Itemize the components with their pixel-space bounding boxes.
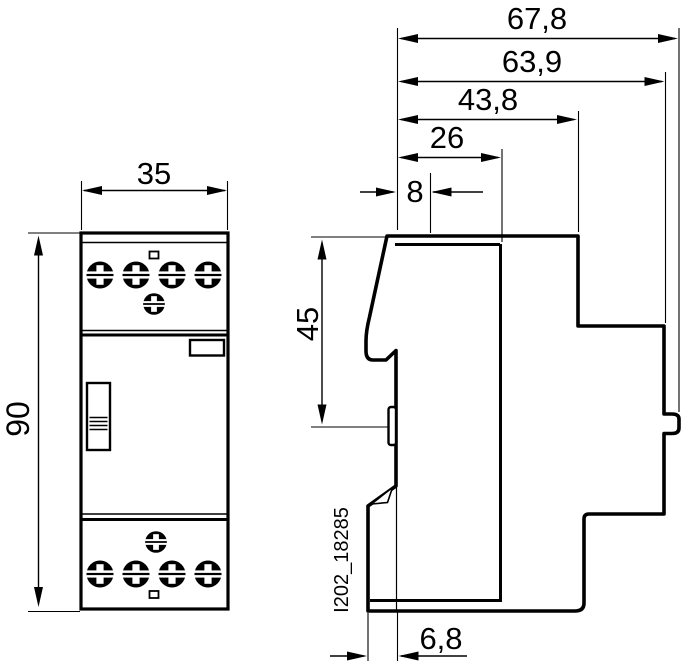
arrowhead <box>398 34 418 43</box>
dim-body-depth-label: 63,9 <box>502 44 562 79</box>
screw-terminal-icon <box>123 262 150 289</box>
screw-terminal-icon <box>87 262 114 289</box>
front-view <box>81 233 228 609</box>
dim-clip-depth: 6,8 <box>330 612 467 661</box>
dim-module-height-label: 90 <box>0 401 36 437</box>
arrowhead <box>207 186 227 195</box>
arrowhead <box>34 587 43 607</box>
side-view <box>366 236 679 611</box>
arrowhead <box>318 405 327 425</box>
dim-clip-depth-label: 6,8 <box>419 621 462 656</box>
contactor-dimension-drawing: 67,8 63,9 43,8 26 8 <box>0 0 685 666</box>
dim-front-offset: 8 <box>360 173 483 233</box>
screw-terminal-icon <box>195 262 222 289</box>
arrowhead <box>432 188 452 197</box>
screw-terminal-icon <box>87 561 114 588</box>
dim-module-height: 90 <box>0 233 80 612</box>
dim-module-width: 35 <box>82 156 228 230</box>
arrowhead <box>82 186 102 195</box>
screw-terminal-small-icon <box>143 293 165 315</box>
label-window <box>190 340 224 356</box>
arrowhead <box>645 77 665 86</box>
screw-terminal-icon <box>123 561 150 588</box>
arrowhead <box>34 236 43 256</box>
dim-overall-depth-label: 67,8 <box>507 1 567 36</box>
indicator-window <box>150 252 159 259</box>
din-rail-tab <box>389 407 397 445</box>
screw-terminal-icon <box>159 561 186 588</box>
dim-module-width-label: 35 <box>137 156 171 191</box>
switch-lever <box>87 383 110 450</box>
drawing-id-label: I202_18285 <box>331 507 353 613</box>
switch-lever-body <box>87 383 110 450</box>
arrowhead <box>481 153 501 162</box>
dim-upper-depth-label: 26 <box>430 120 464 155</box>
dimension-drawing-canvas: 67,8 63,9 43,8 26 8 <box>0 0 685 666</box>
arrowhead <box>347 652 367 661</box>
screw-terminal-icon <box>159 262 186 289</box>
dim-din-height-label: 45 <box>290 307 325 341</box>
dim-front-depth-label: 43,8 <box>458 82 518 117</box>
indicator-window <box>150 591 159 598</box>
arrowhead <box>399 652 419 661</box>
screw-terminal-small-icon <box>145 531 167 553</box>
screw-terminal-icon <box>195 561 222 588</box>
arrowhead <box>398 153 418 162</box>
dim-front-offset-label: 8 <box>406 174 423 209</box>
arrowhead <box>398 77 418 86</box>
arrowhead <box>398 115 418 124</box>
side-view-outline <box>366 236 679 611</box>
arrowhead <box>318 240 327 260</box>
arrowhead <box>557 115 577 124</box>
arrowhead <box>658 34 678 43</box>
arrowhead <box>376 188 396 197</box>
